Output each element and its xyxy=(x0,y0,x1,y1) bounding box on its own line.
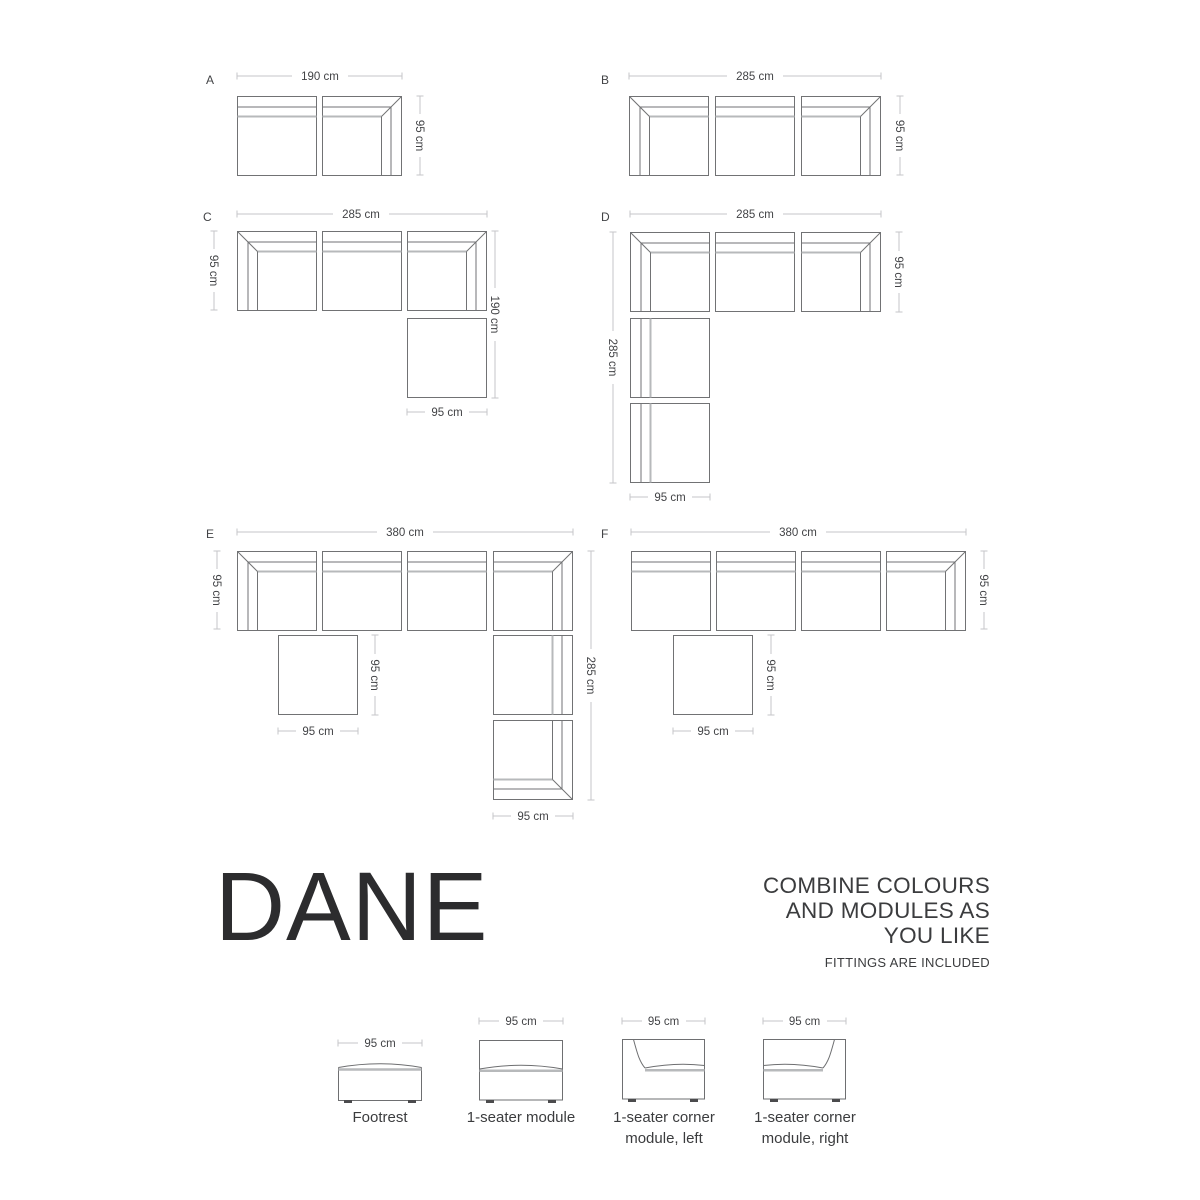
dimension-d-bottom: 95 cm xyxy=(630,492,710,504)
dimension-label: 95 cm xyxy=(505,1016,536,1028)
tagline: COMBINE COLOURS AND MODULES AS YOU LIKE … xyxy=(763,873,990,970)
dimension-f-top: 380 cm xyxy=(631,527,966,539)
config-f-label: F xyxy=(601,527,608,541)
dimension-label: 380 cm xyxy=(779,527,817,539)
tagline-note: FITTINGS ARE INCLUDED xyxy=(763,955,990,970)
dimension-label: 95 cm xyxy=(697,726,728,738)
dimension-c-top: 285 cm xyxy=(237,209,487,221)
dimension-e-top: 380 cm xyxy=(237,527,573,539)
product-title: DANE xyxy=(215,858,489,955)
dimension-label: 95 cm xyxy=(517,811,548,823)
corner-right-front-view xyxy=(764,1040,846,1103)
dimension-c-left: 95 cm xyxy=(207,231,219,310)
dimension-label: 285 cm xyxy=(736,71,774,83)
config-f: F 380 cm 95 cm 95 cm 95 cm xyxy=(601,527,989,738)
dimension-d-right: 95 cm xyxy=(892,232,904,312)
dimension-e-left: 95 cm xyxy=(210,551,222,629)
legend-corner-left: 95 cm xyxy=(622,1016,705,1102)
config-e-label: E xyxy=(206,527,214,541)
dimension-c-right: 190 cm xyxy=(488,231,500,398)
dimension-e-footrest-height: 95 cm xyxy=(368,635,380,715)
dimension-label: 95 cm xyxy=(368,659,380,690)
dimension-label: 95 cm xyxy=(893,120,905,151)
config-a: A 190 cm 95 cm xyxy=(206,71,425,176)
dimension-label: 380 cm xyxy=(386,527,424,539)
config-c: C 285 cm 95 cm 190 cm 95 cm xyxy=(203,209,500,419)
tagline-line-3: YOU LIKE xyxy=(763,923,990,948)
dimension-label: 95 cm xyxy=(210,574,222,605)
dimension-label: 95 cm xyxy=(413,120,425,151)
dimension-d-left: 285 cm xyxy=(606,232,618,483)
dimension-label: 95 cm xyxy=(207,255,219,286)
dimension-b-right: 95 cm xyxy=(893,96,905,175)
dimension-label: 95 cm xyxy=(789,1016,820,1028)
dimension-label: 95 cm xyxy=(977,574,989,605)
config-c-label: C xyxy=(203,210,212,224)
dimension-b-top: 285 cm xyxy=(629,71,881,83)
dimension-e-right: 285 cm xyxy=(584,551,596,800)
corner-left-front-view xyxy=(623,1040,705,1103)
legend-label-line: 1-seater corner xyxy=(705,1107,905,1128)
dimension-label: 95 cm xyxy=(364,1038,395,1050)
dimension-d-top: 285 cm xyxy=(630,209,881,221)
sofa-plan-diagram: A 190 cm 95 cm B 285 cm 95 cm C 285 c xyxy=(0,0,1200,1200)
dimension-label: 95 cm xyxy=(431,407,462,419)
config-a-label: A xyxy=(206,73,214,87)
legend-corner-right: 95 cm xyxy=(763,1016,846,1102)
dimension-label: 95 cm xyxy=(302,726,333,738)
dimension-legend-corner-left: 95 cm xyxy=(622,1016,705,1028)
dimension-legend-1seater: 95 cm xyxy=(479,1016,563,1028)
legend-1seater: 95 cm xyxy=(479,1016,563,1103)
dimension-label: 285 cm xyxy=(736,209,774,221)
dimension-c-bottom: 95 cm xyxy=(407,407,487,419)
product-sheet: { "title": "DANE", "tagline": { "line1":… xyxy=(0,0,1200,1200)
dimension-legend-corner-right: 95 cm xyxy=(763,1016,846,1028)
dimension-label: 190 cm xyxy=(301,71,339,83)
legend-footrest: 95 cm xyxy=(338,1038,422,1103)
legend-label-corner-right: 1-seater corner module, right xyxy=(705,1107,905,1149)
config-b-label: B xyxy=(601,73,609,87)
dimension-e-footrest-width: 95 cm xyxy=(278,726,358,738)
dimension-e-bottom: 95 cm xyxy=(493,811,573,823)
dimension-label: 95 cm xyxy=(764,659,776,690)
footrest-front-view xyxy=(339,1064,422,1103)
1seater-front-view xyxy=(480,1041,563,1104)
dimension-f-footrest-width: 95 cm xyxy=(673,726,753,738)
dimension-label: 95 cm xyxy=(892,256,904,287)
tagline-line-2: AND MODULES AS xyxy=(763,898,990,923)
dimension-legend-footrest: 95 cm xyxy=(338,1038,422,1050)
legend-label-line: module, right xyxy=(705,1128,905,1149)
dimension-label: 95 cm xyxy=(654,492,685,504)
dimension-f-footrest-height: 95 cm xyxy=(764,635,776,715)
dimension-label: 285 cm xyxy=(584,657,596,695)
dimension-label: 285 cm xyxy=(606,339,618,377)
tagline-line-1: COMBINE COLOURS xyxy=(763,873,990,898)
dimension-label: 190 cm xyxy=(488,296,500,334)
dimension-label: 285 cm xyxy=(342,209,380,221)
config-e: E 380 cm 95 cm 95 cm 95 cm 285 cm xyxy=(206,527,596,823)
config-d-label: D xyxy=(601,210,610,224)
config-d: D 285 cm 95 cm 285 cm 95 cm xyxy=(601,209,904,504)
dimension-a-top: 190 cm xyxy=(237,71,402,83)
config-b: B 285 cm 95 cm xyxy=(601,71,905,176)
dimension-label: 95 cm xyxy=(648,1016,679,1028)
dimension-f-right: 95 cm xyxy=(977,551,989,629)
dimension-a-right: 95 cm xyxy=(413,96,425,175)
